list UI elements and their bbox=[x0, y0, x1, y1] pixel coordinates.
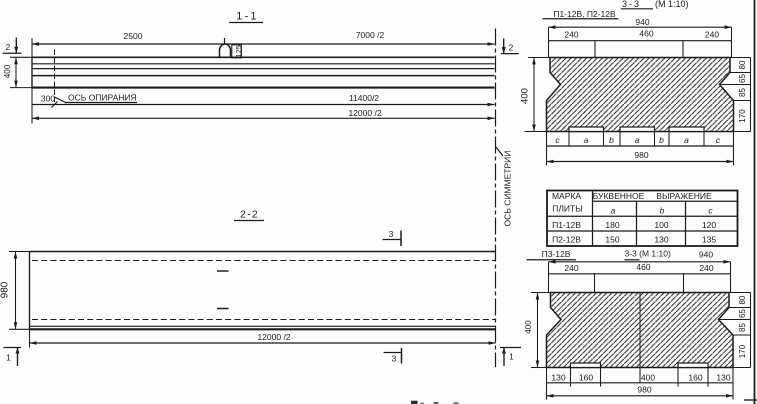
svg-text:65: 65 bbox=[738, 74, 747, 83]
svg-text:150: 150 bbox=[605, 235, 619, 245]
svg-text:b: b bbox=[659, 135, 664, 145]
svg-text:2500: 2500 bbox=[124, 31, 143, 41]
svg-text:b: b bbox=[660, 205, 665, 215]
svg-text:80: 80 bbox=[738, 60, 747, 69]
svg-text:170: 170 bbox=[738, 344, 747, 358]
svg-text:400: 400 bbox=[641, 373, 655, 383]
svg-text:ОСЬ ОПИРАНИЯ: ОСЬ ОПИРАНИЯ bbox=[68, 93, 137, 103]
svg-text:135: 135 bbox=[702, 235, 716, 245]
svg-text:980: 980 bbox=[634, 150, 648, 160]
svg-text:a: a bbox=[684, 135, 689, 145]
svg-text:130: 130 bbox=[716, 373, 730, 383]
svg-text:80: 80 bbox=[738, 295, 747, 304]
svg-text:400: 400 bbox=[524, 320, 533, 334]
svg-text:160: 160 bbox=[688, 373, 702, 383]
svg-text:240: 240 bbox=[705, 30, 719, 40]
svg-text:7000 /2: 7000 /2 bbox=[356, 30, 385, 40]
svg-text:240: 240 bbox=[699, 263, 713, 273]
svg-text:980: 980 bbox=[637, 385, 651, 395]
svg-text:65: 65 bbox=[738, 309, 747, 318]
svg-text:ОСЬ СИММЕТРИИ: ОСЬ СИММЕТРИИ bbox=[503, 151, 513, 227]
svg-text:460: 460 bbox=[636, 262, 650, 272]
svg-text:240: 240 bbox=[564, 263, 578, 273]
svg-text:a: a bbox=[611, 205, 616, 215]
svg-text:П3-12В: П3-12В bbox=[542, 249, 571, 259]
svg-text:100: 100 bbox=[654, 220, 668, 230]
svg-text:a: a bbox=[635, 135, 640, 145]
svg-text:400: 400 bbox=[520, 88, 531, 104]
svg-text:1: 1 bbox=[6, 353, 11, 363]
svg-text:П1-12В, П2-12В: П1-12В, П2-12В bbox=[553, 9, 616, 19]
svg-text:125: 125 bbox=[234, 45, 243, 58]
svg-text:П1-12В: П1-12В bbox=[552, 220, 581, 230]
svg-text:460: 460 bbox=[639, 29, 653, 39]
svg-text:12000 /2: 12000 /2 bbox=[348, 108, 381, 118]
svg-text:2-2: 2-2 bbox=[240, 209, 259, 221]
svg-text:940: 940 bbox=[635, 17, 649, 27]
svg-text:2: 2 bbox=[509, 43, 514, 53]
svg-text:П2-12В: П2-12В bbox=[552, 235, 581, 245]
svg-text:130: 130 bbox=[551, 373, 565, 383]
svg-text:a: a bbox=[584, 135, 589, 145]
svg-text:3-3 (М 1:10): 3-3 (М 1:10) bbox=[625, 249, 671, 259]
svg-text:85: 85 bbox=[738, 88, 747, 97]
svg-text:3-3: 3-3 bbox=[622, 0, 641, 9]
svg-text:ВЫРАЖЕНИЕ: ВЫРАЖЕНИЕ bbox=[656, 191, 712, 201]
svg-text:120: 120 bbox=[702, 220, 716, 230]
svg-text:130: 130 bbox=[654, 235, 668, 245]
svg-text:240: 240 bbox=[564, 30, 578, 40]
svg-text:ПЛИТЫ: ПЛИТЫ bbox=[552, 204, 583, 214]
svg-text:11400/2: 11400/2 bbox=[349, 93, 379, 103]
svg-text:1-1: 1-1 bbox=[236, 11, 259, 23]
svg-text:170: 170 bbox=[738, 109, 747, 123]
svg-text:12000 /2: 12000 /2 bbox=[257, 332, 290, 342]
svg-text:3: 3 bbox=[389, 229, 394, 239]
svg-text:(М 1:10): (М 1:10) bbox=[655, 0, 689, 9]
svg-text:1: 1 bbox=[509, 352, 514, 362]
svg-text:БУКВЕННОЕ: БУКВЕННОЕ bbox=[593, 191, 645, 201]
svg-text:МАРКА: МАРКА bbox=[552, 191, 581, 201]
svg-text:980: 980 bbox=[0, 281, 11, 298]
svg-text:3: 3 bbox=[392, 354, 397, 364]
svg-text:2: 2 bbox=[6, 42, 11, 52]
svg-text:400: 400 bbox=[3, 64, 12, 78]
svg-text:160: 160 bbox=[579, 373, 593, 383]
svg-text:300: 300 bbox=[41, 94, 55, 104]
svg-text:b: b bbox=[609, 135, 614, 145]
svg-text:85: 85 bbox=[738, 323, 747, 332]
svg-text:940: 940 bbox=[699, 250, 713, 260]
svg-text:180: 180 bbox=[605, 220, 619, 230]
